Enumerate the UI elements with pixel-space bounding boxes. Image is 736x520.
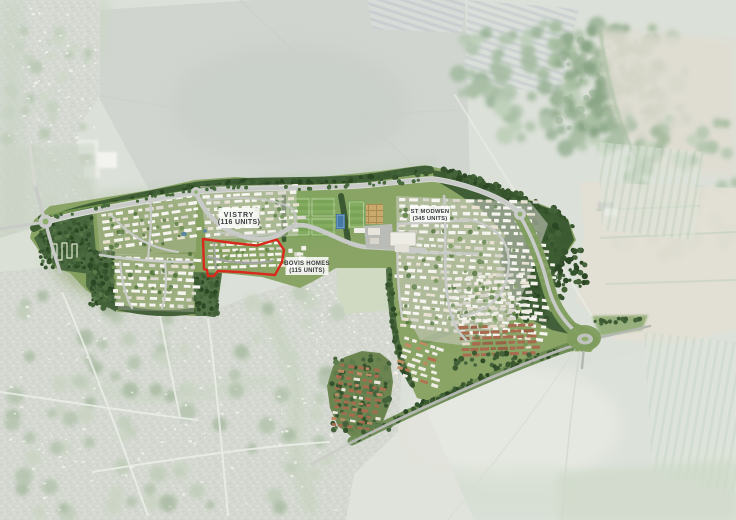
svg-text:ST MODWEN: ST MODWEN: [411, 209, 450, 215]
svg-text:(116 UNITS): (116 UNITS): [218, 219, 260, 226]
svg-text:(345 UNITS): (345 UNITS): [413, 216, 448, 222]
svg-text:(115 UNITS): (115 UNITS): [289, 268, 325, 274]
svg-text:BOVIS HOMES: BOVIS HOMES: [284, 261, 330, 267]
